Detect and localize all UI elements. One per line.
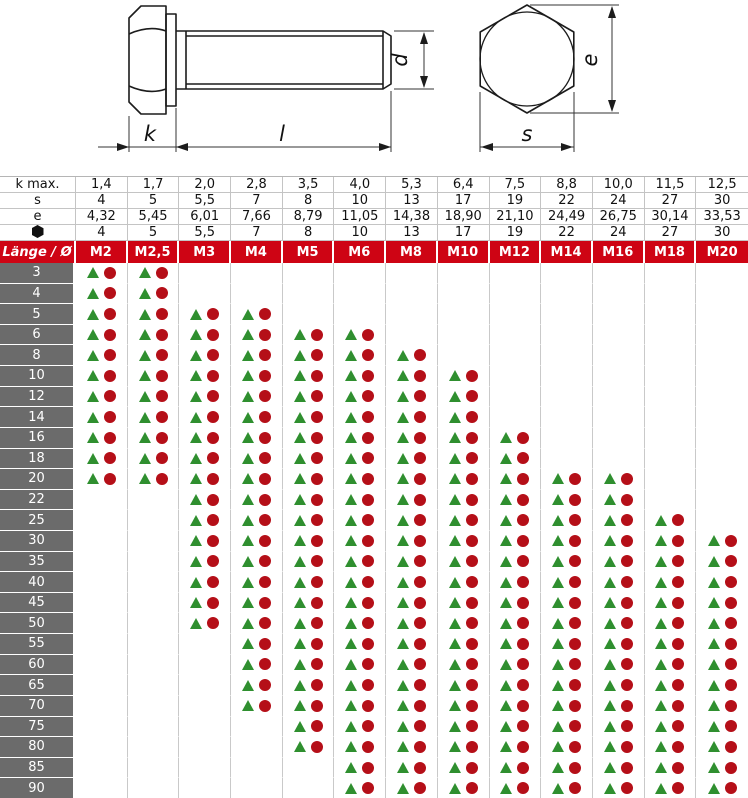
row-length-label: 14: [0, 407, 76, 428]
spec-value: 24: [593, 193, 645, 209]
availability-cell: [334, 572, 386, 593]
availability-cell: [76, 572, 128, 593]
available-circle-icon: [259, 514, 271, 526]
available-circle-icon: [569, 741, 581, 753]
availability-cell: [438, 387, 490, 408]
available-circle-icon: [414, 411, 426, 423]
availability-cell: [283, 449, 335, 470]
column-header-m8: M8: [386, 241, 438, 263]
availability-cell: [386, 469, 438, 490]
available-circle-icon: [207, 329, 219, 341]
availability-cell: [645, 696, 697, 717]
spec-value: 18,90: [438, 209, 490, 225]
availability-cell: [490, 655, 542, 676]
availability-cell: [283, 387, 335, 408]
available-triangle-icon: [552, 721, 564, 732]
available-triangle-icon: [294, 391, 306, 402]
available-triangle-icon: [242, 597, 254, 608]
spec-value: 30,14: [645, 209, 697, 225]
available-triangle-icon: [87, 350, 99, 361]
row-length-label: 90: [0, 778, 76, 798]
available-circle-icon: [466, 432, 478, 444]
available-circle-icon: [569, 762, 581, 774]
available-triangle-icon: [345, 680, 357, 691]
availability-cell: [231, 304, 283, 325]
available-circle-icon: [259, 679, 271, 691]
availability-cell: [179, 469, 231, 490]
available-circle-icon: [517, 658, 529, 670]
availability-cell: [593, 778, 645, 798]
available-circle-icon: [725, 658, 737, 670]
available-triangle-icon: [139, 309, 151, 320]
availability-cell: [593, 345, 645, 366]
available-triangle-icon: [449, 453, 461, 464]
available-circle-icon: [517, 700, 529, 712]
available-triangle-icon: [190, 412, 202, 423]
availability-cell: [231, 737, 283, 758]
availability-cell: [128, 696, 180, 717]
available-triangle-icon: [345, 412, 357, 423]
available-triangle-icon: [449, 762, 461, 773]
available-circle-icon: [569, 535, 581, 547]
available-triangle-icon: [500, 473, 512, 484]
availability-cell: [76, 634, 128, 655]
available-circle-icon: [725, 535, 737, 547]
available-circle-icon: [311, 390, 323, 402]
row-length-label: 3: [0, 263, 76, 284]
available-circle-icon: [104, 308, 116, 320]
availability-cell: [334, 510, 386, 531]
available-triangle-icon: [345, 618, 357, 629]
availability-cell: [438, 325, 490, 346]
available-circle-icon: [672, 762, 684, 774]
available-circle-icon: [156, 370, 168, 382]
available-triangle-icon: [242, 680, 254, 691]
availability-cell: [645, 449, 697, 470]
available-triangle-icon: [449, 659, 461, 670]
available-triangle-icon: [500, 680, 512, 691]
available-circle-icon: [362, 494, 374, 506]
availability-cell: [386, 696, 438, 717]
spec-value: 26,75: [593, 209, 645, 225]
row-length-label: 50: [0, 613, 76, 634]
available-circle-icon: [621, 679, 633, 691]
available-triangle-icon: [397, 618, 409, 629]
availability-cell: [696, 284, 748, 305]
availability-cell: [179, 510, 231, 531]
available-circle-icon: [414, 638, 426, 650]
available-triangle-icon: [552, 680, 564, 691]
available-triangle-icon: [397, 473, 409, 484]
available-triangle-icon: [87, 453, 99, 464]
availability-cell: [645, 510, 697, 531]
available-circle-icon: [621, 617, 633, 629]
availability-cell: [334, 407, 386, 428]
availability-cell: [386, 263, 438, 284]
availability-cell: [231, 345, 283, 366]
availability-cell: [696, 449, 748, 470]
available-circle-icon: [517, 782, 529, 794]
availability-cell: [231, 655, 283, 676]
availability-cell: [386, 613, 438, 634]
available-circle-icon: [517, 597, 529, 609]
availability-cell: [386, 572, 438, 593]
availability-cell: [76, 263, 128, 284]
available-triangle-icon: [500, 783, 512, 794]
available-triangle-icon: [397, 556, 409, 567]
spec-value: 5,5: [179, 225, 231, 241]
available-triangle-icon: [708, 783, 720, 794]
available-triangle-icon: [294, 638, 306, 649]
availability-cell: [179, 675, 231, 696]
availability-cell: [334, 655, 386, 676]
available-triangle-icon: [190, 473, 202, 484]
availability-cell: [334, 366, 386, 387]
available-triangle-icon: [397, 370, 409, 381]
available-triangle-icon: [139, 370, 151, 381]
available-triangle-icon: [242, 309, 254, 320]
availability-cell: [386, 778, 438, 798]
available-triangle-icon: [294, 597, 306, 608]
availability-cell: [541, 325, 593, 346]
row-length-label: 85: [0, 758, 76, 779]
availability-cell: [696, 407, 748, 428]
available-triangle-icon: [294, 556, 306, 567]
available-triangle-icon: [708, 535, 720, 546]
available-triangle-icon: [708, 597, 720, 608]
availability-cell: [645, 572, 697, 593]
spec-value: 10,0: [593, 177, 645, 193]
available-circle-icon: [311, 576, 323, 588]
available-circle-icon: [311, 597, 323, 609]
availability-cell: [128, 675, 180, 696]
available-triangle-icon: [500, 515, 512, 526]
available-triangle-icon: [655, 680, 667, 691]
technical-drawing: k l d e s: [0, 0, 748, 176]
available-triangle-icon: [397, 659, 409, 670]
availability-cell: [490, 366, 542, 387]
availability-cell: [128, 490, 180, 511]
availability-cell: [696, 675, 748, 696]
available-circle-icon: [259, 432, 271, 444]
available-triangle-icon: [552, 762, 564, 773]
available-circle-icon: [414, 741, 426, 753]
available-triangle-icon: [294, 721, 306, 732]
availability-cell: [179, 428, 231, 449]
hexagon-icon: [32, 225, 44, 238]
spec-row-label: s: [0, 193, 76, 209]
dim-label-s: s: [522, 122, 533, 146]
available-triangle-icon: [500, 762, 512, 773]
available-circle-icon: [725, 782, 737, 794]
hex-bolt-datasheet: k l d e s k max.1,41,72,02,83,54,05,36,4…: [0, 0, 748, 798]
availability-cell: [386, 387, 438, 408]
available-triangle-icon: [294, 412, 306, 423]
available-triangle-icon: [397, 432, 409, 443]
available-circle-icon: [466, 658, 478, 670]
availability-cell: [283, 634, 335, 655]
available-circle-icon: [672, 782, 684, 794]
availability-cell: [179, 778, 231, 798]
spec-value: 4: [76, 193, 128, 209]
available-circle-icon: [621, 535, 633, 547]
available-circle-icon: [362, 782, 374, 794]
available-circle-icon: [156, 287, 168, 299]
available-triangle-icon: [500, 453, 512, 464]
available-circle-icon: [725, 679, 737, 691]
availability-cell: [541, 675, 593, 696]
available-circle-icon: [362, 658, 374, 670]
availability-cell: [593, 428, 645, 449]
spec-value: 33,53: [696, 209, 748, 225]
availability-cell: [645, 304, 697, 325]
availability-cell: [696, 263, 748, 284]
availability-cell: [490, 552, 542, 573]
available-triangle-icon: [397, 494, 409, 505]
availability-cell: [541, 449, 593, 470]
availability-cell: [283, 490, 335, 511]
available-triangle-icon: [655, 618, 667, 629]
available-triangle-icon: [345, 597, 357, 608]
spec-value: 2,8: [231, 177, 283, 193]
availability-cell: [128, 428, 180, 449]
available-triangle-icon: [655, 515, 667, 526]
availability-cell: [76, 407, 128, 428]
availability-cell: [128, 325, 180, 346]
available-circle-icon: [569, 514, 581, 526]
row-length-label: 10: [0, 366, 76, 387]
spec-value: 27: [645, 225, 697, 241]
available-circle-icon: [672, 597, 684, 609]
availability-cell: [645, 552, 697, 573]
availability-cell: [231, 284, 283, 305]
available-circle-icon: [621, 473, 633, 485]
availability-cell: [490, 407, 542, 428]
available-triangle-icon: [655, 700, 667, 711]
availability-cell: [128, 717, 180, 738]
available-triangle-icon: [655, 741, 667, 752]
available-triangle-icon: [190, 309, 202, 320]
available-triangle-icon: [345, 721, 357, 732]
availability-cell: [231, 490, 283, 511]
availability-cell: [334, 717, 386, 738]
available-circle-icon: [569, 617, 581, 629]
available-circle-icon: [466, 555, 478, 567]
availability-cell: [490, 696, 542, 717]
availability-cell: [438, 717, 490, 738]
available-circle-icon: [362, 452, 374, 464]
column-header-laenge: Länge / Ø: [0, 241, 76, 263]
available-circle-icon: [517, 741, 529, 753]
availability-cell: [283, 407, 335, 428]
availability-cell: [283, 593, 335, 614]
availability-cell: [386, 552, 438, 573]
availability-cell: [283, 717, 335, 738]
availability-cell: [179, 758, 231, 779]
available-triangle-icon: [708, 721, 720, 732]
spec-value: 22: [541, 193, 593, 209]
available-triangle-icon: [604, 741, 616, 752]
available-circle-icon: [466, 411, 478, 423]
availability-cell: [490, 717, 542, 738]
availability-cell: [593, 449, 645, 470]
availability-cell: [128, 284, 180, 305]
available-triangle-icon: [708, 577, 720, 588]
available-circle-icon: [362, 432, 374, 444]
availability-cell: [231, 325, 283, 346]
available-circle-icon: [517, 576, 529, 588]
spec-value: 10: [334, 225, 386, 241]
available-triangle-icon: [655, 556, 667, 567]
available-triangle-icon: [87, 267, 99, 278]
available-circle-icon: [259, 535, 271, 547]
available-circle-icon: [621, 782, 633, 794]
availability-cell: [334, 758, 386, 779]
availability-cell: [593, 531, 645, 552]
available-circle-icon: [311, 370, 323, 382]
row-length-label: 55: [0, 634, 76, 655]
availability-cell: [128, 449, 180, 470]
availability-cell: [179, 449, 231, 470]
available-circle-icon: [466, 638, 478, 650]
available-triangle-icon: [345, 556, 357, 567]
availability-cell: [283, 263, 335, 284]
available-circle-icon: [207, 617, 219, 629]
availability-cell: [541, 593, 593, 614]
availability-cell: [696, 490, 748, 511]
spec-value: 2,0: [179, 177, 231, 193]
available-circle-icon: [517, 762, 529, 774]
column-header-m10: M10: [438, 241, 490, 263]
availability-cell: [334, 696, 386, 717]
availability-cell: [334, 737, 386, 758]
column-header-m18: M18: [645, 241, 697, 263]
availability-cell: [231, 634, 283, 655]
available-circle-icon: [725, 555, 737, 567]
spec-value: 11,5: [645, 177, 697, 193]
available-triangle-icon: [552, 515, 564, 526]
availability-cell: [128, 737, 180, 758]
available-triangle-icon: [449, 721, 461, 732]
available-triangle-icon: [345, 453, 357, 464]
available-circle-icon: [207, 473, 219, 485]
availability-cell: [541, 572, 593, 593]
available-triangle-icon: [242, 432, 254, 443]
availability-cell: [76, 449, 128, 470]
row-length-label: 40: [0, 572, 76, 593]
available-circle-icon: [362, 390, 374, 402]
available-circle-icon: [207, 597, 219, 609]
row-length-label: 8: [0, 345, 76, 366]
available-triangle-icon: [87, 309, 99, 320]
availability-cell: [593, 552, 645, 573]
spec-value: 22: [541, 225, 593, 241]
availability-cell: [231, 469, 283, 490]
available-circle-icon: [672, 679, 684, 691]
availability-cell: [490, 449, 542, 470]
spec-value: 10: [334, 193, 386, 209]
available-triangle-icon: [552, 783, 564, 794]
available-triangle-icon: [294, 329, 306, 340]
available-circle-icon: [104, 349, 116, 361]
available-circle-icon: [259, 452, 271, 464]
spec-value: 24,49: [541, 209, 593, 225]
available-circle-icon: [672, 700, 684, 712]
spec-value: 6,4: [438, 177, 490, 193]
available-circle-icon: [259, 349, 271, 361]
availability-cell: [541, 613, 593, 634]
available-triangle-icon: [655, 721, 667, 732]
available-circle-icon: [104, 411, 116, 423]
available-circle-icon: [725, 741, 737, 753]
availability-cell: [179, 325, 231, 346]
available-triangle-icon: [242, 350, 254, 361]
availability-cell: [438, 407, 490, 428]
availability-cell: [645, 717, 697, 738]
available-triangle-icon: [190, 370, 202, 381]
bolt-head-end-view: [480, 5, 574, 113]
availability-cell: [334, 634, 386, 655]
available-circle-icon: [259, 390, 271, 402]
available-circle-icon: [311, 349, 323, 361]
availability-cell: [541, 696, 593, 717]
availability-cell: [386, 737, 438, 758]
availability-cell: [645, 366, 697, 387]
available-circle-icon: [466, 473, 478, 485]
available-circle-icon: [414, 720, 426, 732]
spec-value: 7,5: [490, 177, 542, 193]
available-triangle-icon: [242, 494, 254, 505]
available-circle-icon: [311, 494, 323, 506]
availability-cell: [438, 634, 490, 655]
available-circle-icon: [621, 762, 633, 774]
availability-cell: [386, 366, 438, 387]
available-triangle-icon: [190, 494, 202, 505]
available-circle-icon: [259, 329, 271, 341]
available-triangle-icon: [397, 412, 409, 423]
spec-value: 13: [386, 193, 438, 209]
available-circle-icon: [569, 473, 581, 485]
available-circle-icon: [311, 658, 323, 670]
availability-cell: [438, 263, 490, 284]
availability-cell: [76, 325, 128, 346]
availability-cell: [645, 531, 697, 552]
available-circle-icon: [725, 700, 737, 712]
availability-cell: [179, 263, 231, 284]
availability-cell: [76, 531, 128, 552]
availability-cell: [283, 510, 335, 531]
availability-cell: [179, 696, 231, 717]
availability-cell: [386, 325, 438, 346]
spec-value: 12,5: [696, 177, 748, 193]
column-header-m14: M14: [541, 241, 593, 263]
availability-cell: [645, 655, 697, 676]
spec-value: 7: [231, 193, 283, 209]
spec-value: 5,5: [179, 193, 231, 209]
availability-cell: [231, 263, 283, 284]
available-circle-icon: [621, 576, 633, 588]
available-triangle-icon: [345, 329, 357, 340]
available-circle-icon: [414, 432, 426, 444]
availability-cell: [231, 428, 283, 449]
available-triangle-icon: [552, 741, 564, 752]
available-circle-icon: [517, 514, 529, 526]
availability-cell: [76, 737, 128, 758]
column-header-m4: M4: [231, 241, 283, 263]
available-circle-icon: [156, 432, 168, 444]
available-circle-icon: [259, 494, 271, 506]
available-triangle-icon: [397, 515, 409, 526]
